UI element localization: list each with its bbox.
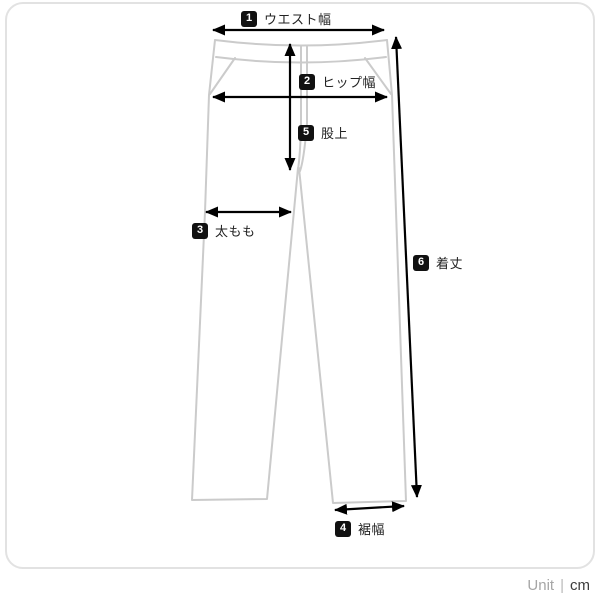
label-rise-text: 股上 (321, 123, 348, 142)
label-thigh-width: 3 太もも (192, 221, 256, 240)
unit-note: Unit|cm (527, 577, 590, 594)
size-guide-image: 1 ウエスト幅 2 ヒップ幅 3 太もも 4 裾幅 5 股上 6 着丈 Unit… (0, 0, 600, 600)
badge-6: 6 (413, 255, 429, 271)
label-hip-width-text: ヒップ幅 (322, 72, 376, 91)
badge-2: 2 (299, 74, 315, 90)
label-waist-width-text: ウエスト幅 (264, 9, 332, 28)
badge-3: 3 (192, 223, 208, 239)
hem-width-arrow (335, 506, 404, 510)
badge-4: 4 (335, 521, 351, 537)
label-hip-width: 2 ヒップ幅 (299, 72, 376, 91)
unit-separator: | (560, 577, 564, 594)
label-length-text: 着丈 (436, 253, 463, 272)
measurement-arrows (206, 30, 417, 510)
badge-1: 1 (241, 11, 257, 27)
right-leg-outline (299, 40, 406, 503)
fly-line-left (298, 46, 301, 169)
unit-label: Unit (527, 577, 554, 594)
label-hem-width: 4 裾幅 (335, 519, 385, 538)
waistband-top-line (215, 40, 387, 46)
pants-outline (192, 40, 406, 503)
unit-value: cm (570, 577, 590, 594)
label-thigh-width-text: 太もも (215, 221, 256, 240)
label-length: 6 着丈 (413, 253, 463, 272)
left-leg-outline (192, 40, 298, 500)
label-waist-width: 1 ウエスト幅 (241, 9, 332, 28)
left-pocket-line (210, 58, 235, 94)
badge-5: 5 (298, 125, 314, 141)
label-hem-width-text: 裾幅 (358, 519, 385, 538)
label-rise: 5 股上 (298, 123, 348, 142)
